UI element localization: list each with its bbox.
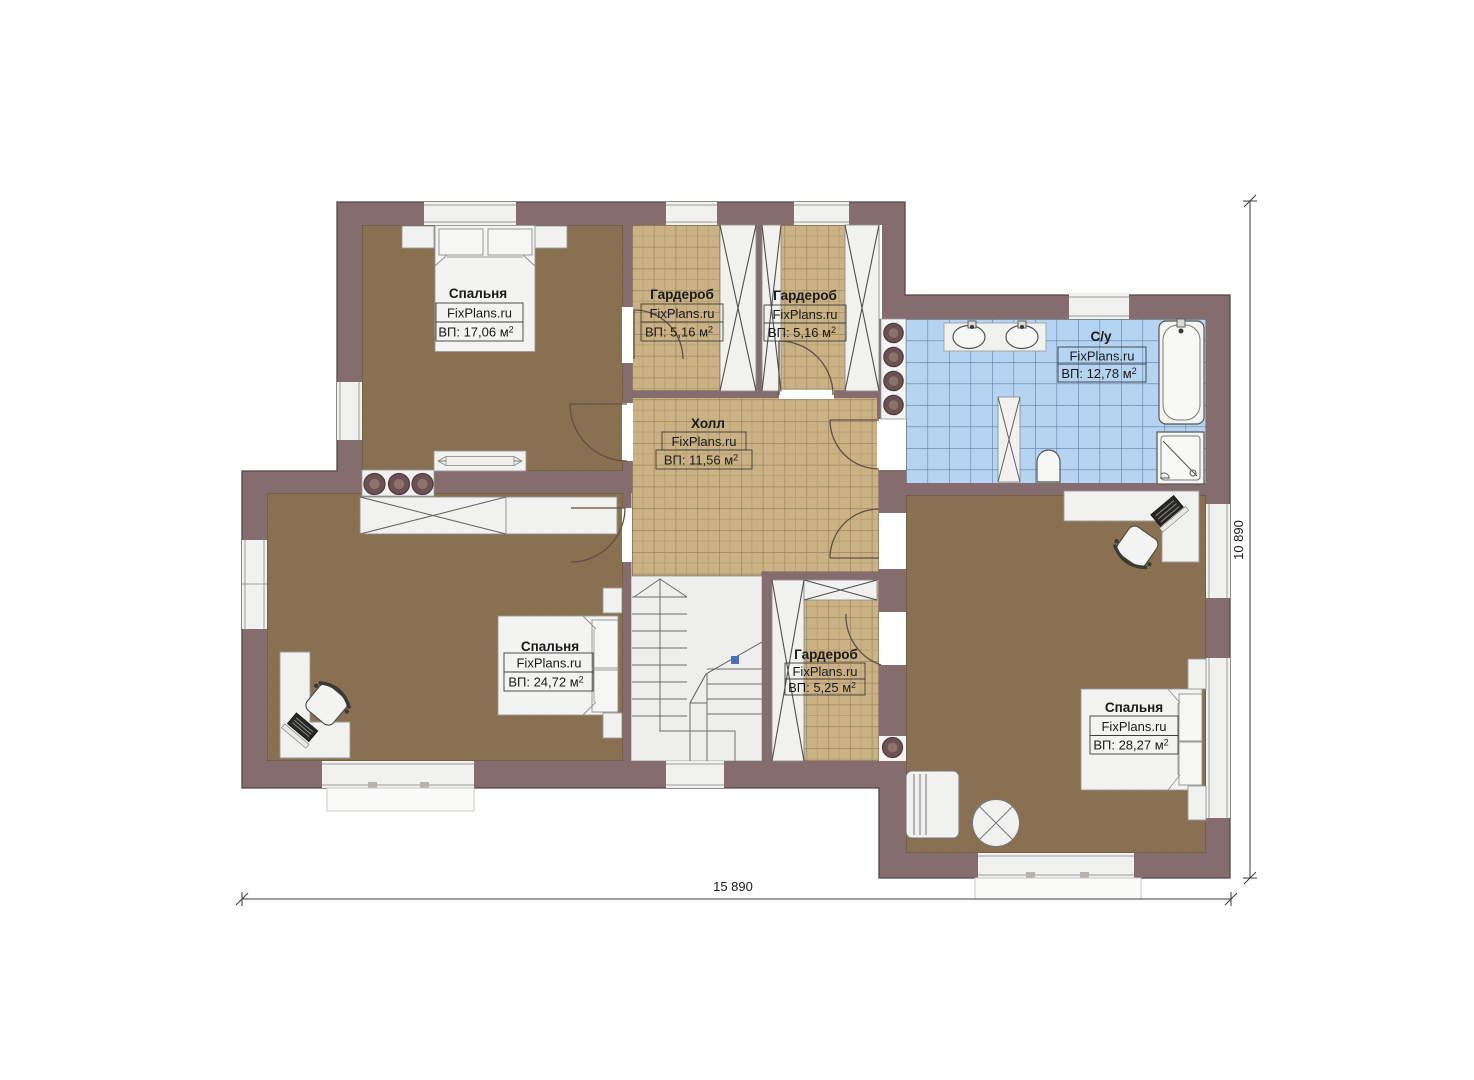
svg-text:10 890: 10 890 <box>1231 520 1246 560</box>
svg-text:FixPlans.ru: FixPlans.ru <box>1101 719 1166 734</box>
svg-text:15 890: 15 890 <box>713 879 753 894</box>
svg-text:С/у: С/у <box>1090 329 1112 344</box>
svg-text:ВП: 5,16 м2: ВП: 5,16 м2 <box>768 325 836 340</box>
svg-text:FixPlans.ru: FixPlans.ru <box>649 306 714 321</box>
svg-text:FixPlans.ru: FixPlans.ru <box>447 306 512 321</box>
svg-text:Гардероб: Гардероб <box>773 288 837 303</box>
svg-text:FixPlans.ru: FixPlans.ru <box>792 664 857 679</box>
svg-text:FixPlans.ru: FixPlans.ru <box>671 434 736 449</box>
svg-text:Холл: Холл <box>691 416 725 431</box>
svg-text:ВП: 5,25 м2: ВП: 5,25 м2 <box>788 680 856 695</box>
svg-text:Гардероб: Гардероб <box>794 647 858 662</box>
svg-text:Спальня: Спальня <box>449 286 507 301</box>
svg-text:Спальня: Спальня <box>1105 700 1163 715</box>
svg-text:Гардероб: Гардероб <box>650 287 714 302</box>
svg-text:ВП: 5,16 м2: ВП: 5,16 м2 <box>645 325 713 340</box>
svg-text:ВП: 17,06 м2: ВП: 17,06 м2 <box>438 325 513 340</box>
svg-text:ВП: 12,78 м2: ВП: 12,78 м2 <box>1061 366 1136 381</box>
svg-text:ВП: 11,56 м2: ВП: 11,56 м2 <box>664 453 738 468</box>
svg-text:Спальня: Спальня <box>521 639 579 654</box>
svg-text:ВП: 28,27 м2: ВП: 28,27 м2 <box>1093 738 1168 753</box>
svg-text:ВП: 24,72 м2: ВП: 24,72 м2 <box>508 675 583 690</box>
svg-text:FixPlans.ru: FixPlans.ru <box>1069 349 1134 364</box>
svg-text:FixPlans.ru: FixPlans.ru <box>772 307 837 322</box>
svg-text:FixPlans.ru: FixPlans.ru <box>516 656 581 671</box>
